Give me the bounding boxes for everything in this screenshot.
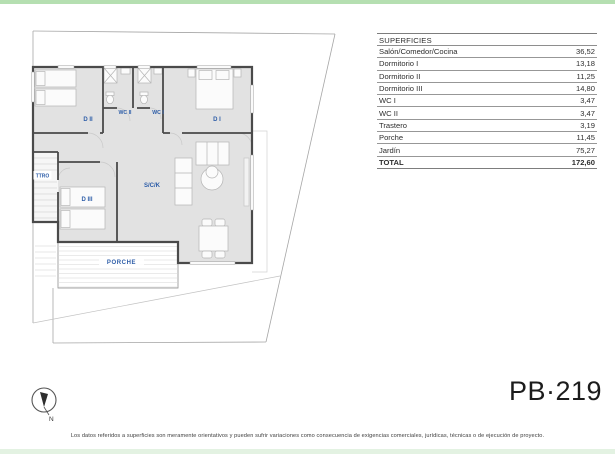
table-row: WC II 3,47 (377, 107, 597, 119)
row-label: Porche (379, 133, 403, 142)
room-label-porche: PORCHE (107, 260, 136, 266)
room-label-trastero: TTRO (36, 174, 50, 180)
row-value: 11,25 (577, 72, 595, 81)
project-code: PB·219 (509, 376, 602, 407)
table-row: Dormitorio III 14,80 (377, 83, 597, 95)
row-label: Jardín (379, 146, 400, 155)
row-label: Dormitorio I (379, 59, 418, 68)
table-row: Jardín 75,27 (377, 144, 597, 156)
room-label-dormitorio3: D III (81, 197, 92, 203)
row-value: 36,52 (576, 47, 595, 56)
terrace-edge-line (252, 131, 267, 272)
row-value: 75,27 (576, 146, 595, 155)
row-value: 3,47 (580, 109, 595, 118)
table-row: Salón/Comedor/Cocina 36,52 (377, 46, 597, 58)
table-row: Dormitorio I 13,18 (377, 58, 597, 70)
row-value: 11,45 (577, 133, 595, 142)
trastero-room (33, 152, 58, 222)
total-label: TOTAL (379, 158, 404, 167)
row-value: 3,47 (580, 96, 595, 105)
table-row: Dormitorio II 11,25 (377, 71, 597, 83)
row-label: WC I (379, 96, 396, 105)
room-label-dormitorio2: D II (83, 117, 93, 123)
row-label: Salón/Comedor/Cocina (379, 47, 458, 56)
table-row-total: TOTAL 172,60 (377, 157, 597, 169)
room-label-wc2: WC II (119, 110, 133, 116)
room-label-dormitorio1: D I (213, 117, 221, 123)
row-label: Dormitorio III (379, 84, 422, 93)
bottom-green-strip (0, 449, 615, 454)
surfaces-table-header: SUPERFICIES (377, 33, 597, 46)
plan-sheet: D II WC II WC I D I TTRO D III S/C/K POR… (0, 0, 615, 454)
row-label: Trastero (379, 121, 407, 130)
row-value: 14,80 (576, 84, 595, 93)
floor-plan: D II WC II WC I D I TTRO D III S/C/K POR… (0, 0, 370, 380)
room-label-wc1: WC I (152, 110, 164, 116)
north-compass-icon: N (24, 383, 66, 433)
row-label: WC II (379, 109, 398, 118)
table-row: Porche 11,45 (377, 132, 597, 144)
row-value: 13,18 (576, 59, 595, 68)
table-row: WC I 3,47 (377, 95, 597, 107)
outside-steps (35, 246, 56, 276)
compass-n-label: N (49, 416, 54, 423)
disclaimer-text: Los datos referidos a superficies son me… (0, 433, 615, 439)
room-label-salon: S/C/K (144, 183, 161, 189)
table-row: Trastero 3,19 (377, 120, 597, 132)
row-label: Dormitorio II (379, 72, 420, 81)
surfaces-table: SUPERFICIES Salón/Comedor/Cocina 36,52 D… (377, 33, 597, 169)
total-value: 172,60 (572, 158, 595, 167)
row-value: 3,19 (580, 121, 595, 130)
